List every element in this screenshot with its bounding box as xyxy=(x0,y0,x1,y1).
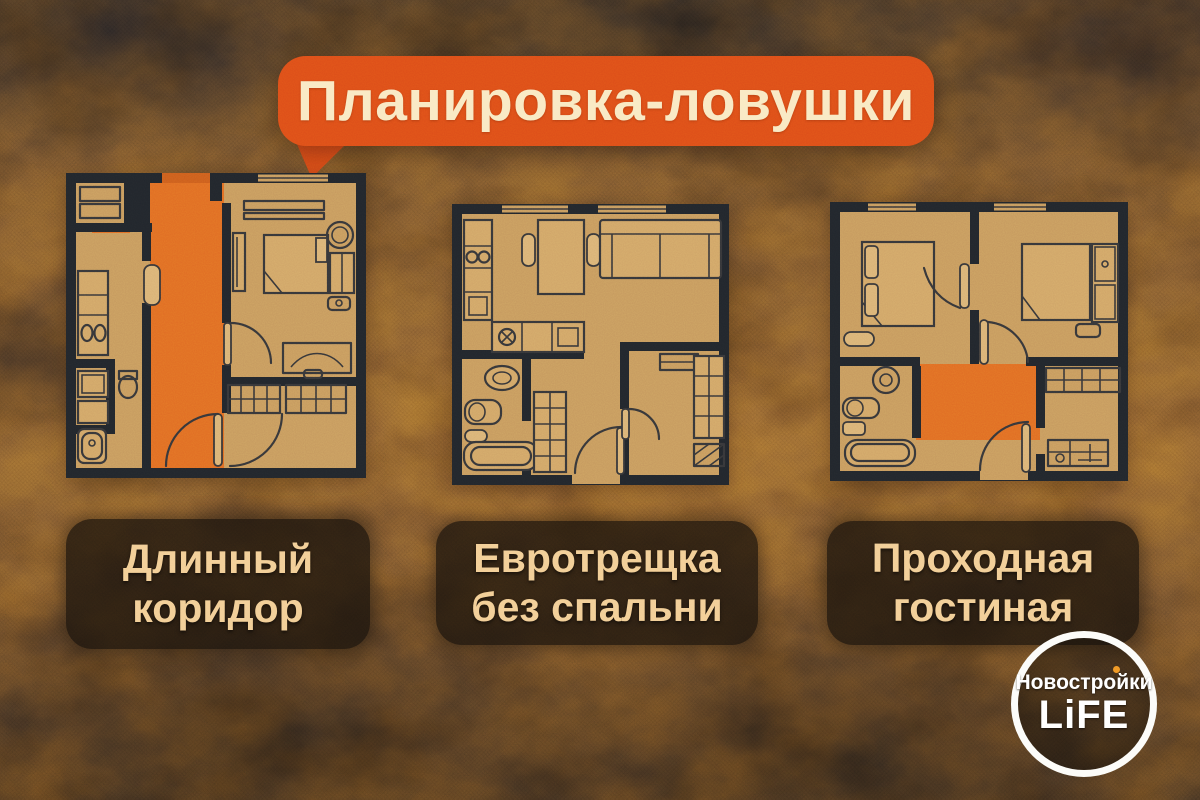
floor-plan-walkthrough-living-svg xyxy=(830,202,1128,481)
plan-label-walkthrough-living: Проходная гостиная xyxy=(827,521,1139,645)
label-line: гостиная xyxy=(893,586,1074,629)
label-line: Евротрещка xyxy=(473,537,720,580)
logo-line-1: Новостройки xyxy=(1015,671,1152,695)
infographic-canvas: Планировка-ловушки xyxy=(0,0,1200,800)
logo-accent-dot xyxy=(1113,666,1120,673)
label-line: коридор xyxy=(132,587,303,630)
kitchen-fixtures xyxy=(78,271,108,355)
brand-logo: Новостройки LiFE xyxy=(1011,631,1157,777)
sofa xyxy=(600,220,721,278)
plan-label-euro-studio: Евротрещка без спальни xyxy=(436,521,758,645)
title-bubble: Планировка-ловушки xyxy=(278,56,934,146)
logo-line-2: LiFE xyxy=(1039,693,1130,738)
label-line: без спальни xyxy=(471,586,723,629)
floor-plan-long-corridor xyxy=(66,173,366,478)
label-line: Проходная xyxy=(872,537,1094,580)
page-title: Планировка-ловушки xyxy=(297,68,915,134)
floor-plan-walkthrough-living xyxy=(830,202,1128,481)
floor-plan-euro-studio xyxy=(452,204,729,485)
floor-plan-long-corridor-svg xyxy=(66,173,366,478)
label-line: Длинный xyxy=(123,538,313,581)
plan-label-long-corridor: Длинный коридор xyxy=(66,519,370,649)
hall-wardrobe xyxy=(534,392,566,472)
floor-plan-euro-studio-svg xyxy=(452,204,729,485)
